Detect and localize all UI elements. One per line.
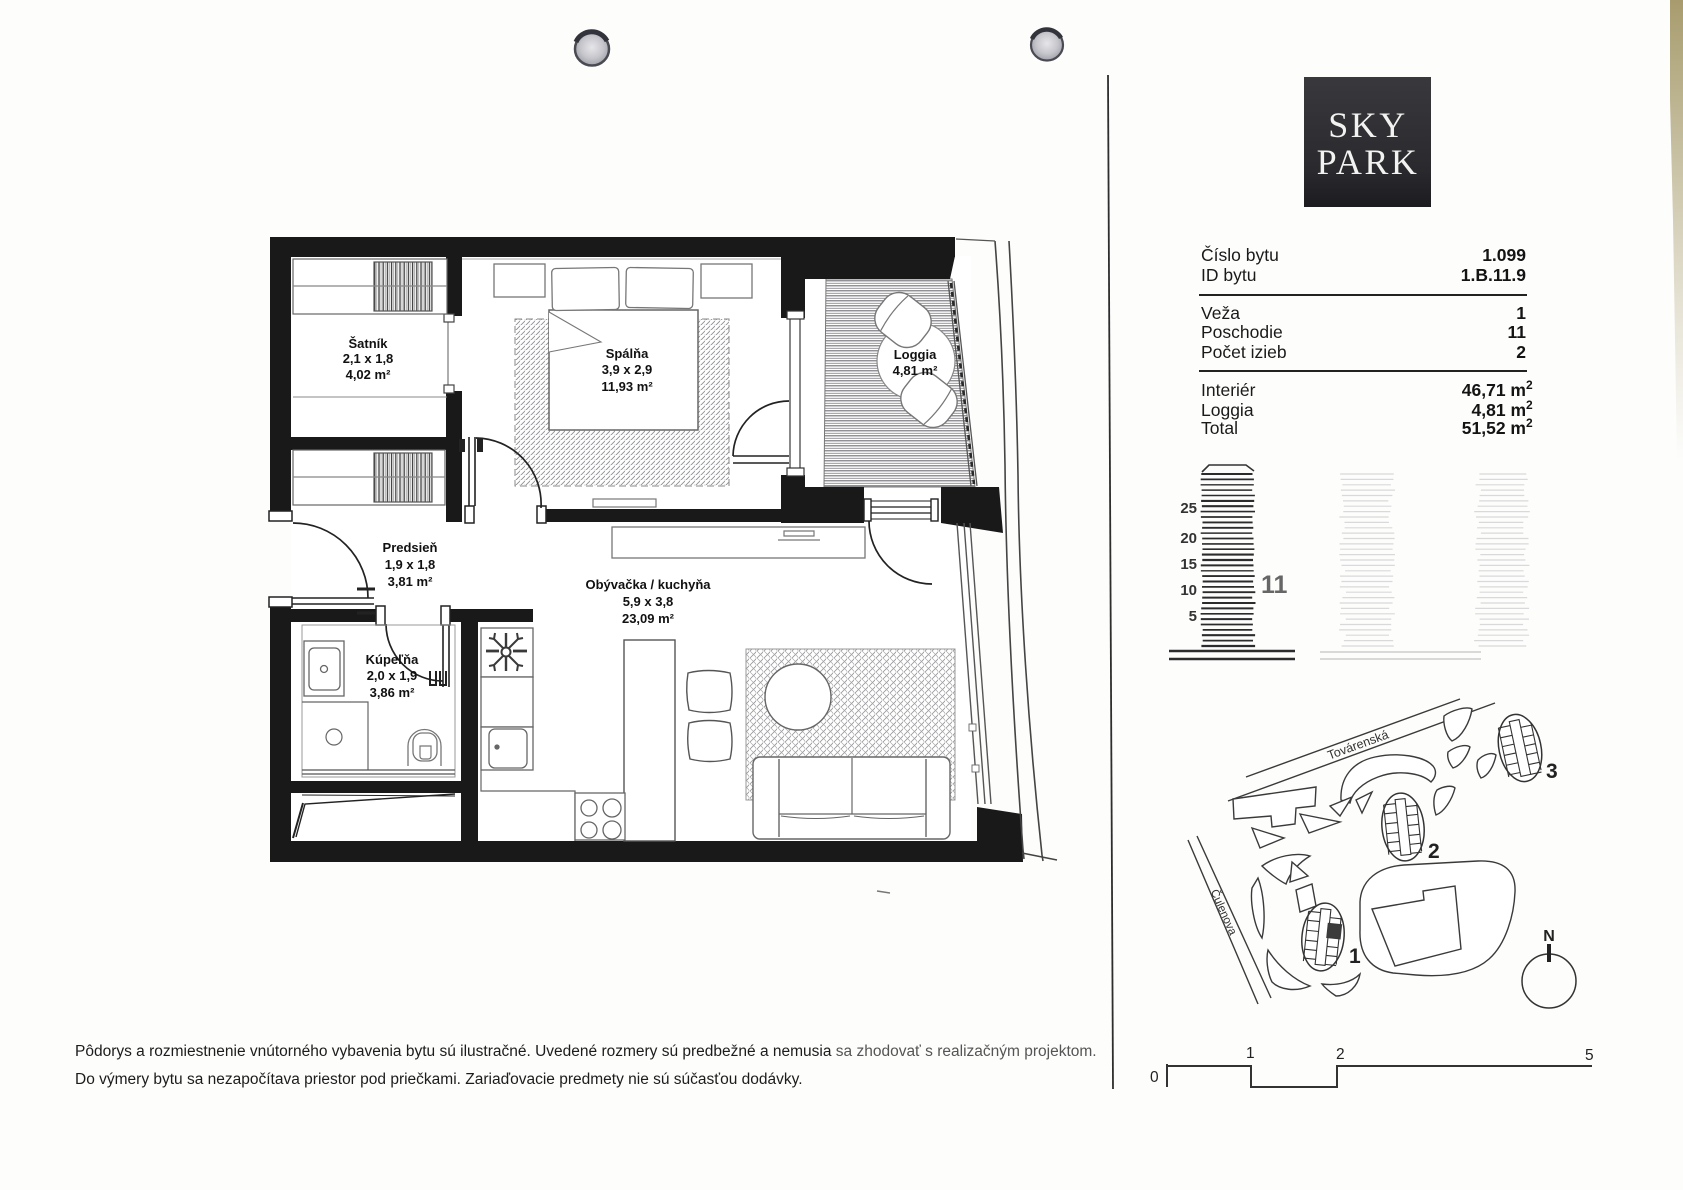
svg-text:ID bytu: ID bytu — [1201, 265, 1256, 285]
svg-text:1: 1 — [1516, 303, 1526, 323]
svg-text:Poschodie: Poschodie — [1201, 322, 1283, 342]
svg-text:10: 10 — [1180, 582, 1197, 599]
svg-text:11: 11 — [1261, 571, 1288, 599]
svg-text:PARK: PARK — [1317, 142, 1420, 182]
svg-text:15: 15 — [1180, 556, 1197, 573]
svg-text:11: 11 — [1508, 322, 1527, 342]
svg-text:1.099: 1.099 — [1482, 245, 1526, 265]
svg-text:Počet izieb: Počet izieb — [1201, 342, 1287, 362]
svg-text:20: 20 — [1180, 530, 1197, 547]
svg-text:25: 25 — [1180, 500, 1197, 517]
svg-text:1: 1 — [1349, 945, 1361, 968]
svg-text:2: 2 — [1526, 398, 1533, 412]
svg-text:1: 1 — [1246, 1045, 1255, 1062]
svg-text:5: 5 — [1189, 608, 1197, 625]
svg-text:2: 2 — [1526, 378, 1533, 392]
svg-text:Loggia4,81 m²: Loggia4,81 m² — [893, 347, 938, 378]
svg-text:Interiér: Interiér — [1201, 380, 1256, 400]
svg-text:Pôdorys a rozmiestnenie vnútor: Pôdorys a rozmiestnenie vnútorného vybav… — [75, 1043, 1097, 1060]
svg-text:2: 2 — [1526, 416, 1533, 430]
svg-text:Loggia: Loggia — [1201, 400, 1254, 420]
svg-text:Veža: Veža — [1201, 303, 1240, 323]
svg-text:Predsieň1,9 x 1,83,81 m²: Predsieň1,9 x 1,83,81 m² — [383, 540, 438, 589]
svg-text:1.B.11.9: 1.B.11.9 — [1461, 265, 1526, 285]
svg-text:5: 5 — [1585, 1047, 1594, 1064]
svg-text:2: 2 — [1516, 342, 1526, 362]
svg-text:Číslo bytu: Číslo bytu — [1201, 244, 1279, 265]
svg-text:51,52 m: 51,52 m — [1462, 418, 1526, 438]
svg-text:Do výmery bytu sa nezapočítava: Do výmery bytu sa nezapočítava priestor … — [75, 1071, 803, 1088]
svg-text:Šatník2,1 x 1,84,02 m²: Šatník2,1 x 1,84,02 m² — [343, 336, 394, 382]
svg-text:2: 2 — [1336, 1046, 1345, 1063]
svg-text:4,81 m: 4,81 m — [1472, 400, 1526, 420]
svg-text:SKY: SKY — [1328, 105, 1408, 145]
svg-text:2: 2 — [1428, 840, 1440, 863]
svg-text:Spálňa3,9 x 2,911,93 m²: Spálňa3,9 x 2,911,93 m² — [601, 346, 653, 394]
svg-text:3: 3 — [1546, 760, 1558, 783]
svg-text:0: 0 — [1150, 1069, 1159, 1086]
svg-text:N: N — [1543, 928, 1555, 945]
svg-text:Total: Total — [1201, 418, 1238, 438]
svg-text:Kúpeľňa2,0 x 1,93,86 m²: Kúpeľňa2,0 x 1,93,86 m² — [366, 652, 419, 700]
svg-text:46,71 m: 46,71 m — [1462, 380, 1526, 400]
